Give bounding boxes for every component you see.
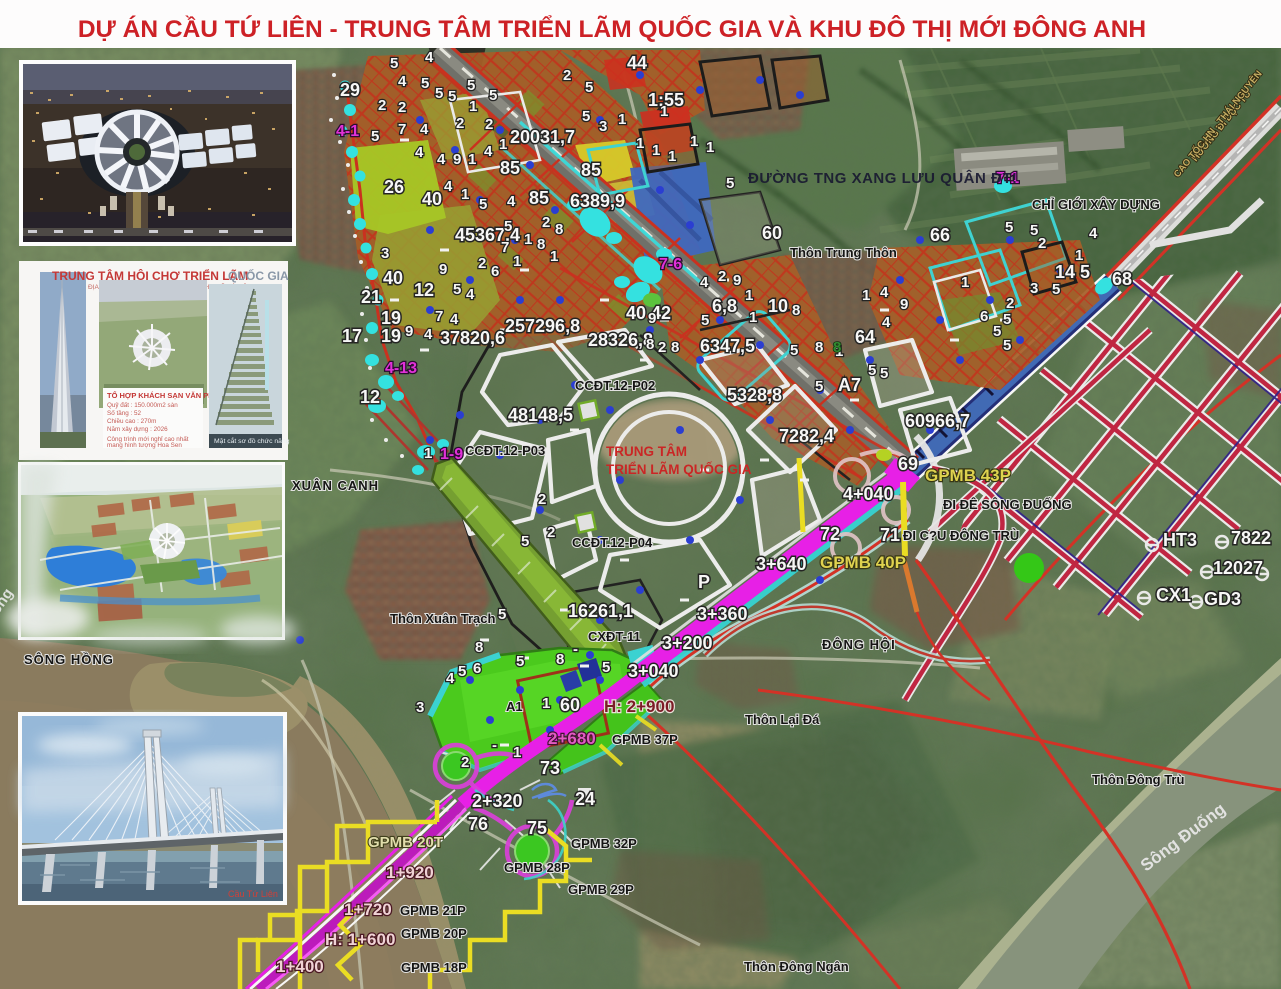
- svg-text:mang hình tượng Hoa Sen: mang hình tượng Hoa Sen: [107, 442, 182, 449]
- svg-text:DỰ ÁN CẦU TỨ LIÊN - TRUNG TÂM: DỰ ÁN CẦU TỨ LIÊN - TRUNG TÂM TRIỂN LÃM …: [78, 15, 1146, 43]
- svg-text:Năm xây dựng : 2026: Năm xây dựng : 2026: [107, 426, 168, 433]
- svg-text:Chiều cao : 270m: Chiều cao : 270m: [107, 416, 156, 425]
- svg-text:Mặt cắt sơ đồ chức năng: Mặt cắt sơ đồ chức năng: [214, 436, 290, 445]
- svg-text:Cầu Tứ Liên: Cầu Tứ Liên: [228, 889, 278, 899]
- svg-text:QUỐC GIA: QUỐC GIA: [228, 268, 289, 283]
- svg-text:Số tầng : 52: Số tầng : 52: [107, 408, 141, 417]
- svg-text:Quỹ đất : 150.000m2 sàn: Quỹ đất : 150.000m2 sàn: [107, 400, 178, 409]
